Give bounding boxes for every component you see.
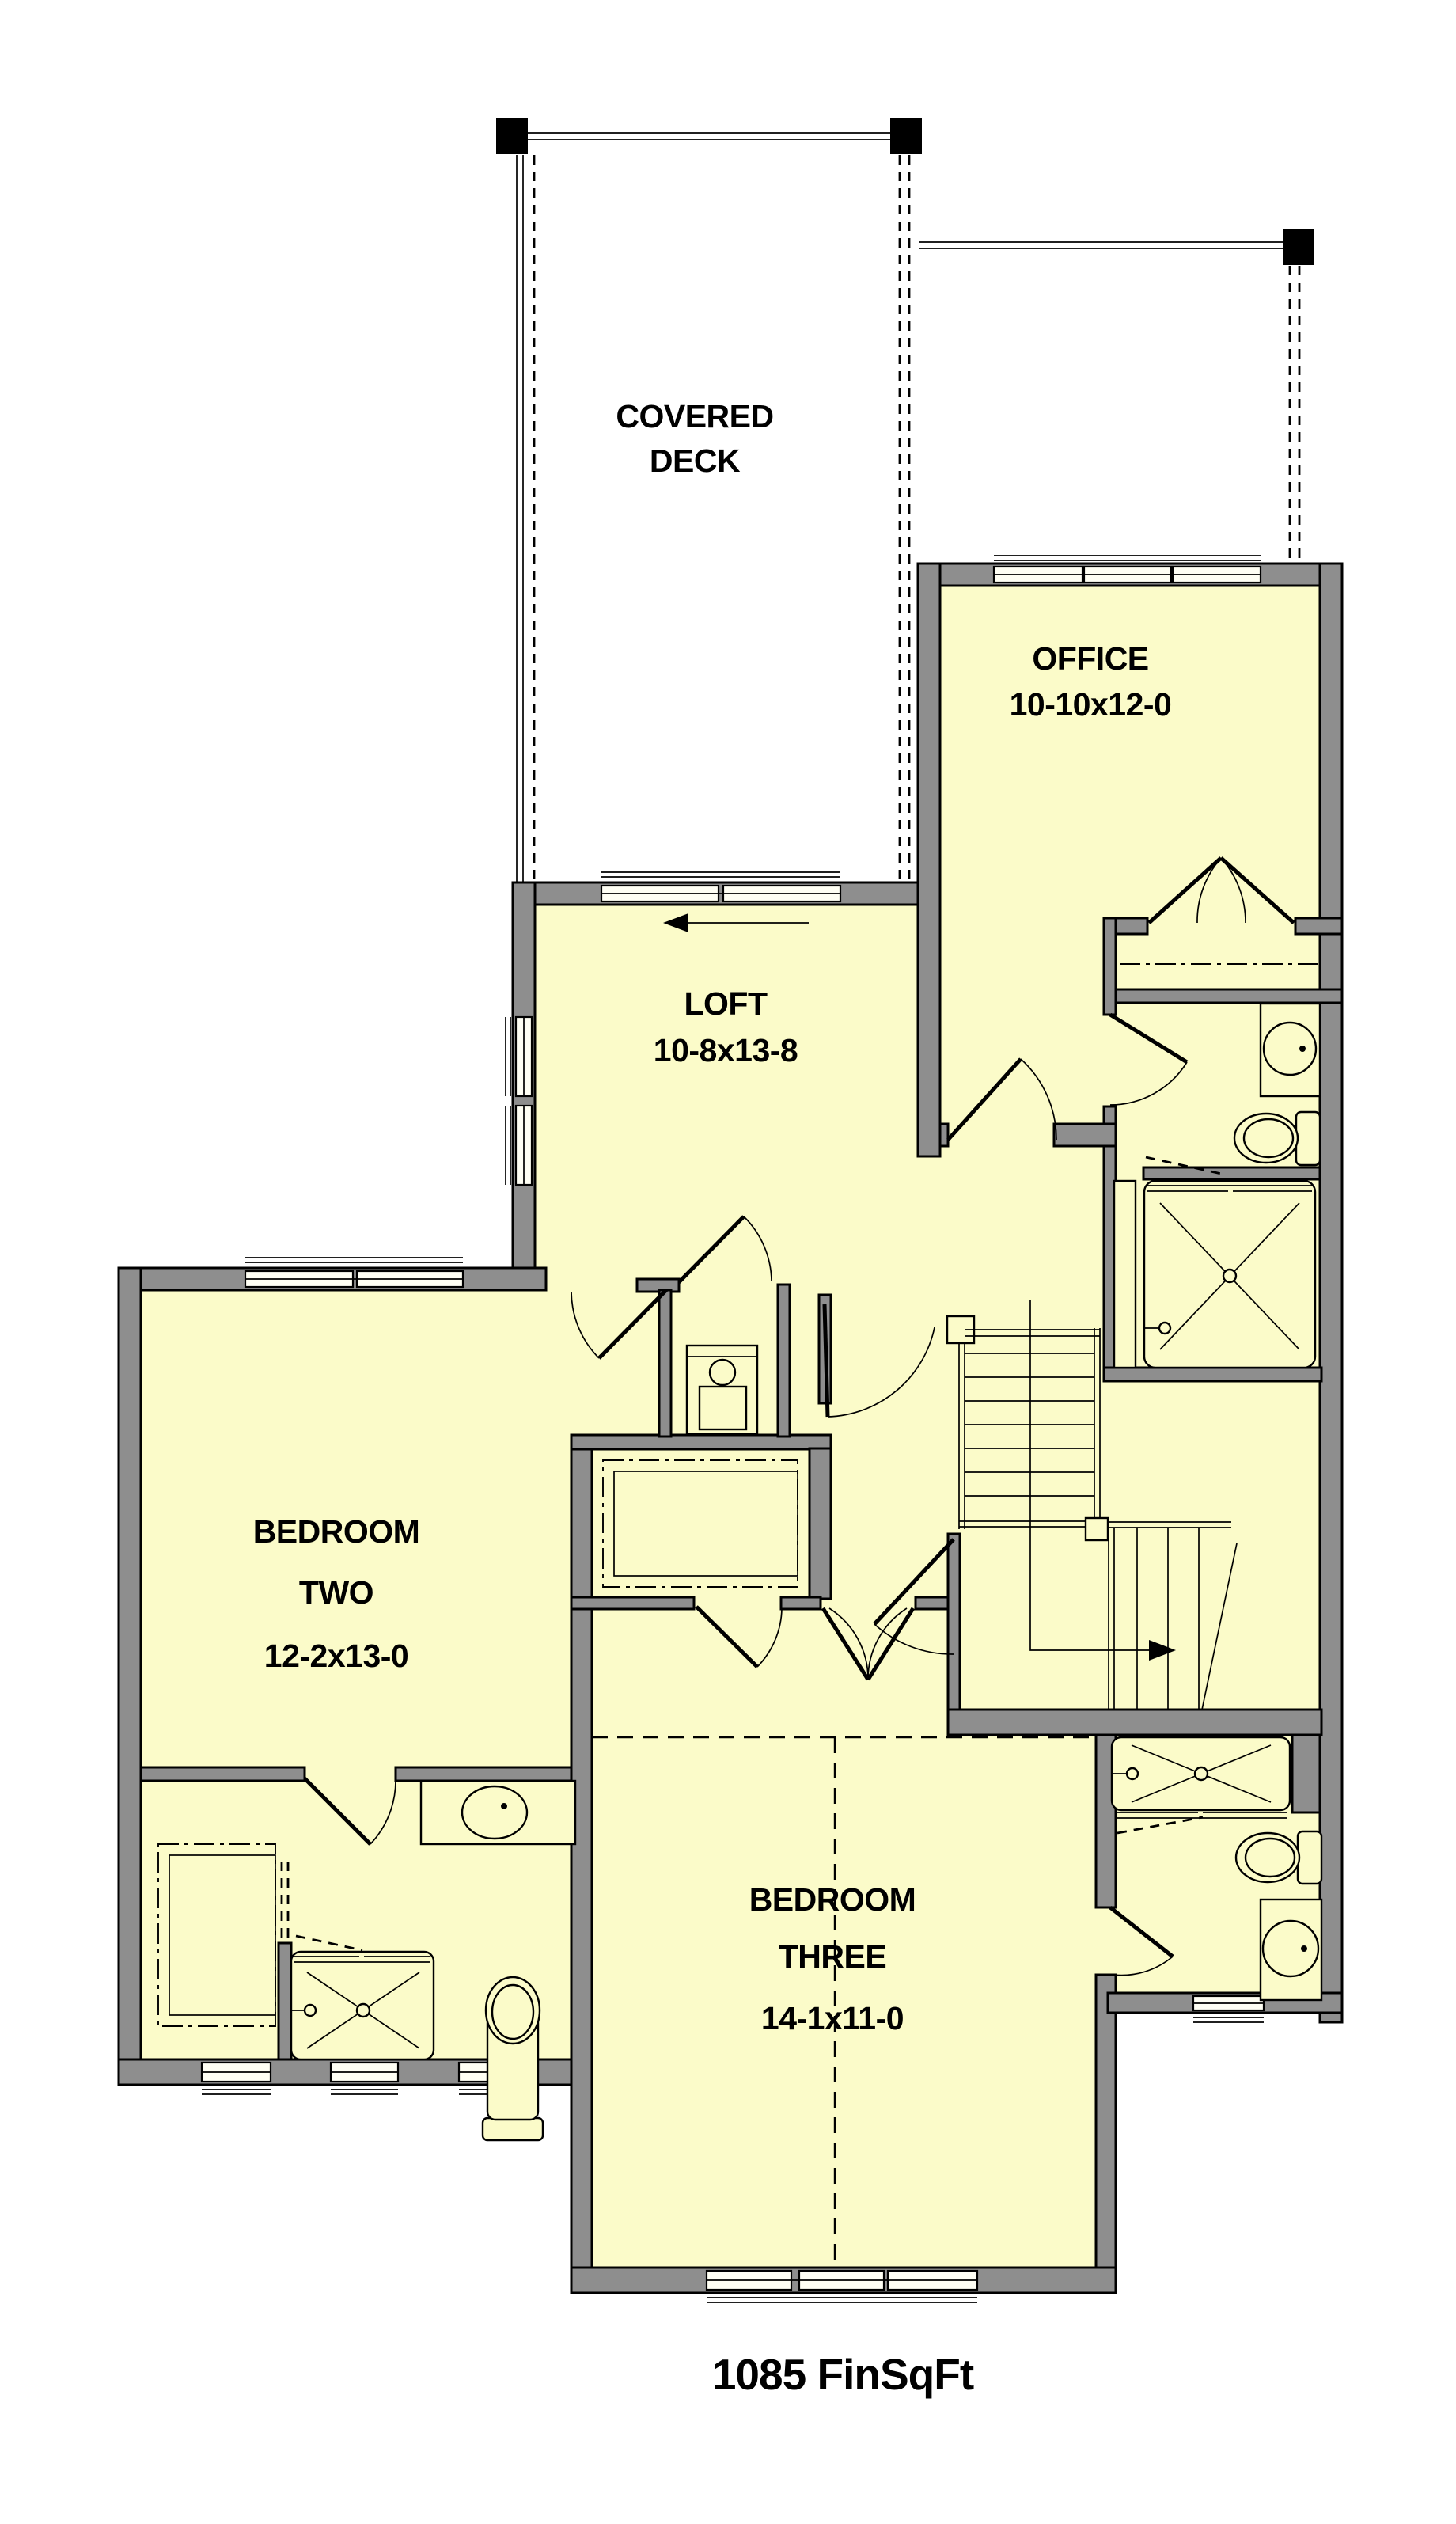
window	[707, 2271, 977, 2302]
deck-post	[891, 119, 921, 154]
deck-post	[497, 119, 527, 154]
linen-cabinet	[1114, 1181, 1136, 1368]
shower	[291, 1952, 434, 2059]
window	[1193, 1996, 1264, 2022]
deck-post	[1283, 230, 1314, 264]
label-office-dims: 10-10x12-0	[1010, 686, 1172, 723]
shower-head-icon	[1127, 1768, 1138, 1779]
label-office: OFFICE	[1032, 640, 1148, 677]
window	[994, 556, 1261, 583]
label-bedroom-two: BEDROOM	[253, 1513, 420, 1550]
stair-newel	[1086, 1518, 1108, 1540]
label-loft-dims: 10-8x13-8	[654, 1032, 798, 1068]
label-covered-deck: COVERED	[616, 398, 773, 435]
shower	[1144, 1181, 1315, 1368]
window	[202, 2063, 526, 2094]
label-bedroom-two-2: TWO	[299, 1574, 373, 1611]
shower-head-icon	[305, 2005, 316, 2016]
toilet	[1236, 1831, 1321, 1884]
vanity-sink	[1261, 1900, 1321, 2000]
label-loft: LOFT	[684, 985, 767, 1022]
label-bedroom-three: BEDROOM	[749, 1881, 916, 1918]
shower-head-icon	[1159, 1323, 1170, 1334]
floor-plan-drawing: COVERED DECK OFFICE 10-10x12-0 LOFT 10-8…	[0, 0, 1456, 2524]
vanity-sink	[1261, 1004, 1320, 1096]
toilet	[1234, 1112, 1320, 1165]
label-bedroom-three-dims: 14-1x11-0	[761, 2000, 904, 2036]
laundry-unit	[687, 1346, 757, 1434]
area-footer: 1085 FinSqFt	[712, 2350, 974, 2399]
vanity-sink	[421, 1781, 575, 1844]
label-bedroom-three-2: THREE	[779, 1938, 886, 1975]
shower	[1112, 1737, 1290, 1818]
toilet	[483, 1977, 543, 2140]
label-covered-deck-2: DECK	[650, 442, 741, 479]
label-bedroom-two-dims: 12-2x13-0	[264, 1638, 408, 1674]
floor-plan-page: COVERED DECK OFFICE 10-10x12-0 LOFT 10-8…	[0, 0, 1456, 2524]
